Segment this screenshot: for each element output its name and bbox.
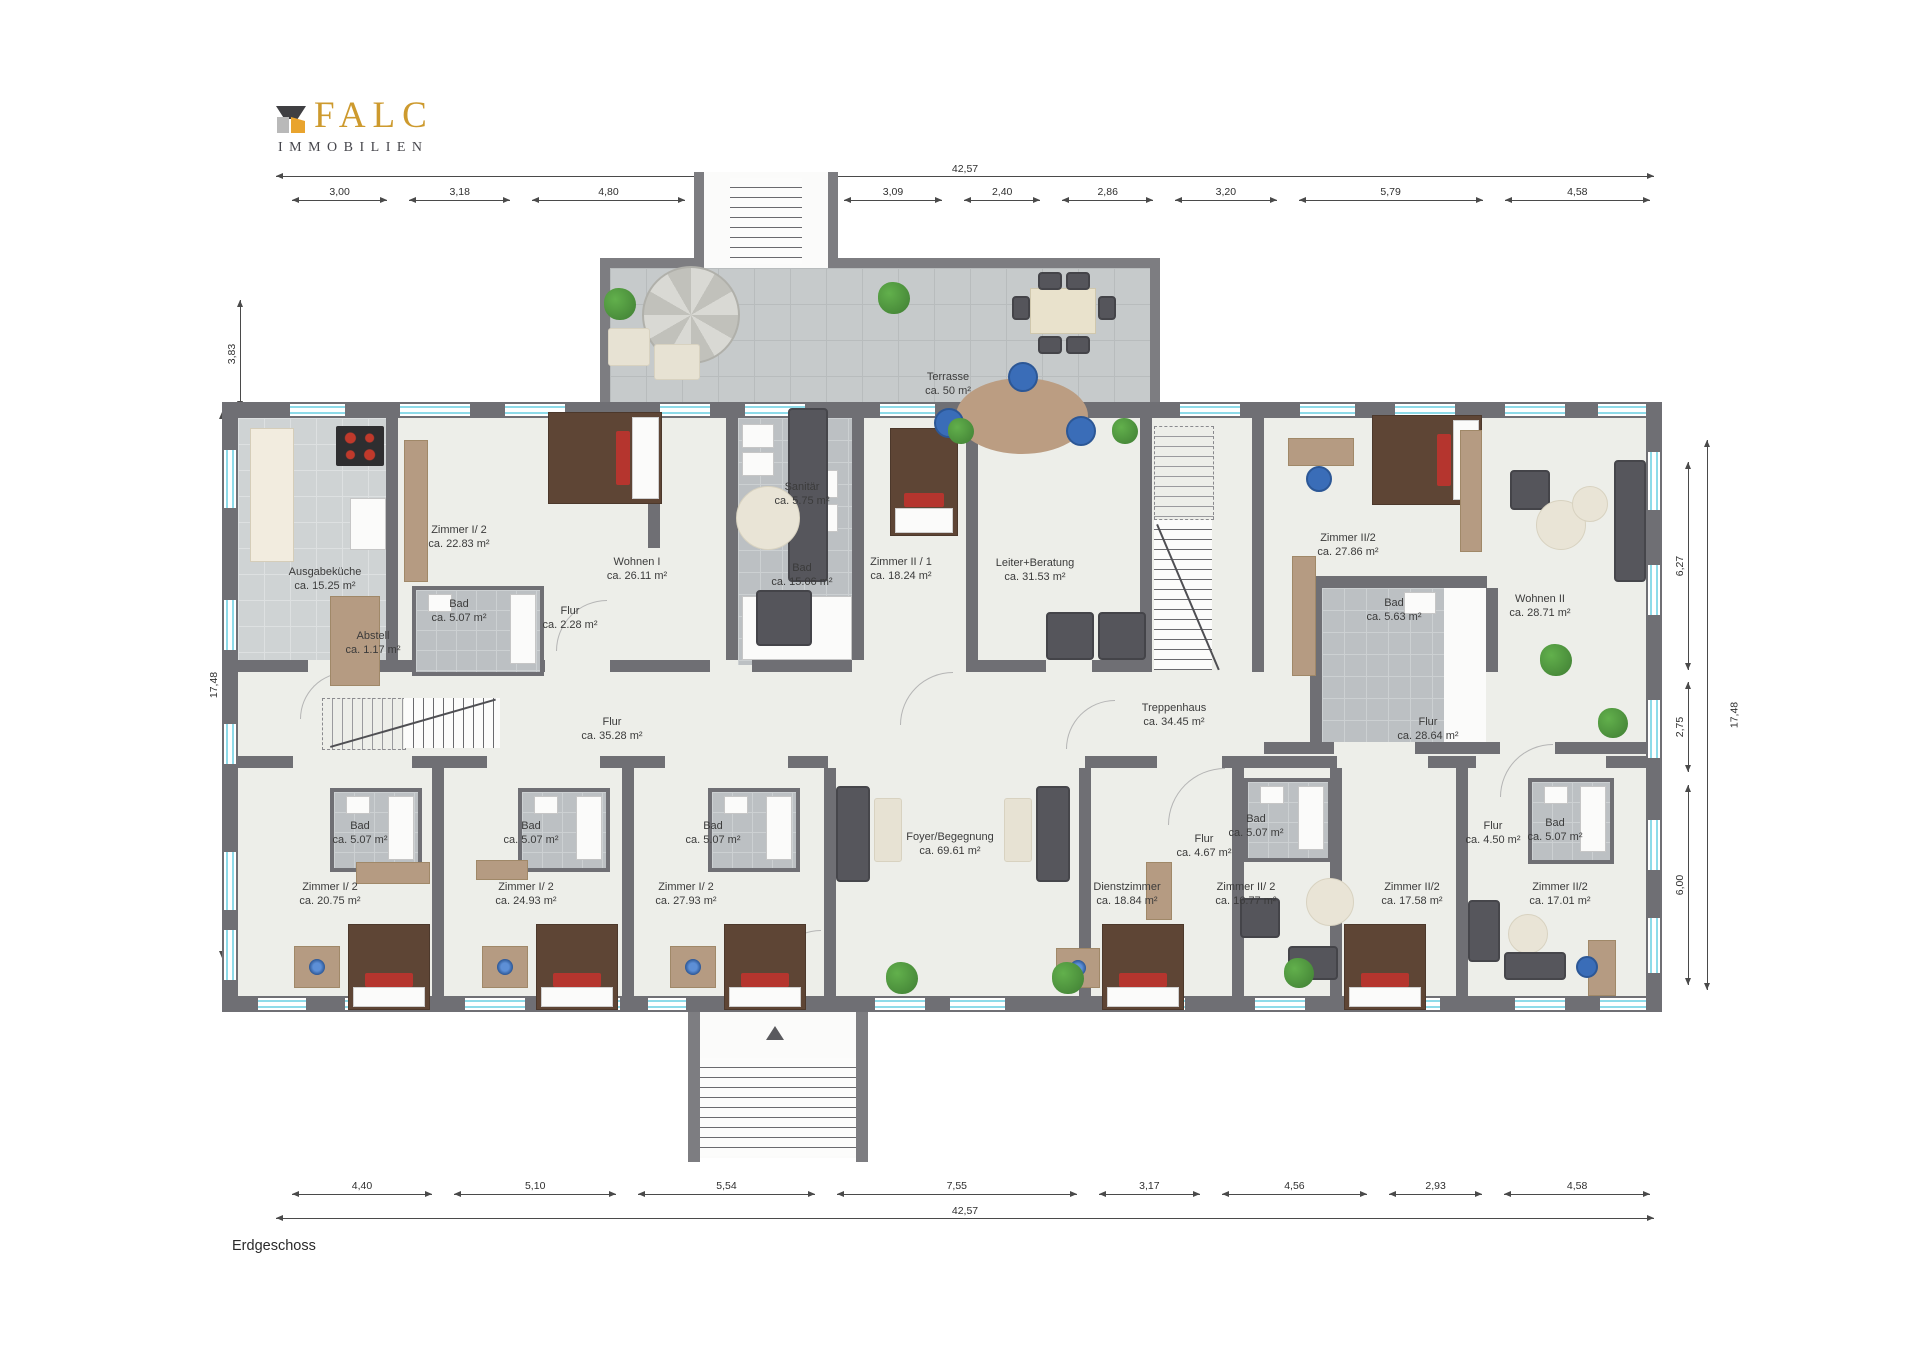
room-name: Zimmer I/ 2 xyxy=(255,881,405,895)
room-label-flur-links: Flurca. 35.28 m² xyxy=(537,716,687,743)
interior-wall xyxy=(1317,576,1487,588)
blanket-icon xyxy=(1361,973,1409,987)
interior-wall xyxy=(966,418,978,660)
dim-segment: 4,58 xyxy=(1505,186,1650,204)
room-label-zimmer-ii2-1758: Zimmer II/2ca. 17.58 m² xyxy=(1337,881,1487,908)
armchair xyxy=(756,590,812,646)
dim-segment: 5,79 xyxy=(1299,186,1483,204)
window-icon xyxy=(1648,700,1660,758)
room-label-wohnen-2: Wohnen IIca. 28.71 m² xyxy=(1465,593,1615,620)
room-label-foyer: Foyer/Begegnungca. 69.61 m² xyxy=(875,831,1025,858)
room-area: ca. 16.77 m² xyxy=(1171,895,1321,909)
lounge-chair xyxy=(654,344,700,380)
interior-wall xyxy=(1222,756,1337,768)
dim-segment: 4,40 xyxy=(292,1180,432,1198)
interior-wall xyxy=(966,660,1046,672)
window-icon xyxy=(1598,404,1646,416)
window-icon xyxy=(1300,404,1355,416)
blanket-icon xyxy=(741,973,789,987)
room-area: ca. 5.07 m² xyxy=(1181,827,1331,841)
window-icon xyxy=(1648,918,1660,973)
room-label-bad-d: Badca. 5.07 m² xyxy=(1181,813,1331,840)
plant-icon xyxy=(1052,962,1084,994)
room-area: ca. 28.64 m² xyxy=(1353,730,1503,744)
plant-icon xyxy=(886,962,918,994)
dim-segment: 3,09 xyxy=(844,186,942,204)
room-label-zimmer-ii2-1677: Zimmer II/ 2ca. 16.77 m² xyxy=(1171,881,1321,908)
room-area: ca. 2.28 m² xyxy=(495,619,645,633)
room-name: Flur xyxy=(495,605,645,619)
room-name: Bad xyxy=(638,820,788,834)
room-area: ca. 31.53 m² xyxy=(960,571,1110,585)
window-icon xyxy=(290,404,345,416)
stair-wall xyxy=(828,172,838,268)
room-name: Zimmer I/ 2 xyxy=(611,881,761,895)
blanket-icon xyxy=(1119,973,1167,987)
desk xyxy=(1288,438,1354,466)
dim-right-segment: 2,75 xyxy=(1688,682,1689,772)
dim-segment: 3,18 xyxy=(409,186,510,204)
falc-logo-icon xyxy=(276,106,306,133)
flower-icon xyxy=(685,959,701,975)
sink-icon xyxy=(742,452,774,476)
staircase-top xyxy=(730,178,802,264)
room-name: Terrasse xyxy=(873,371,1023,385)
room-area: ca. 27.93 m² xyxy=(611,895,761,909)
interior-wall xyxy=(824,768,836,996)
room-label-bad-c: Badca. 5.07 m² xyxy=(638,820,788,847)
pillow-icon xyxy=(1107,987,1179,1007)
pillow-icon xyxy=(1349,987,1421,1007)
room-area: ca. 35.28 m² xyxy=(537,730,687,744)
dim-top-segments: 3,003,184,803,633,092,402,863,205,794,58 xyxy=(292,186,1650,204)
floor-label: Erdgeschoss xyxy=(232,1238,316,1254)
brand-subtitle: IMMOBILIEN xyxy=(278,140,429,156)
kitchen-counter xyxy=(250,428,294,562)
window-icon xyxy=(1515,998,1565,1010)
window-icon xyxy=(880,404,935,416)
plant-icon xyxy=(878,282,910,314)
blanket-icon xyxy=(365,973,413,987)
blanket-icon xyxy=(904,493,944,507)
room-name: Flur xyxy=(1353,716,1503,730)
dim-segment: 3,20 xyxy=(1175,186,1277,204)
room-area: ca. 5.07 m² xyxy=(285,834,435,848)
room-area: ca. 27.86 m² xyxy=(1273,546,1423,560)
plant-icon xyxy=(604,288,636,320)
window-icon xyxy=(875,998,925,1010)
window-icon xyxy=(1505,404,1565,416)
stove-icon xyxy=(336,426,384,466)
interior-wall xyxy=(610,660,710,672)
window-icon xyxy=(1180,404,1240,416)
room-area: ca. 50 m² xyxy=(873,385,1023,399)
pillow-icon xyxy=(353,987,425,1007)
room-name: Abstell xyxy=(298,630,448,644)
rug xyxy=(1572,486,1608,522)
bed xyxy=(348,924,430,1010)
room-area: ca. 28.71 m² xyxy=(1465,607,1615,621)
room-area: ca. 4.67 m² xyxy=(1129,847,1279,861)
room-area: ca. 5.75 m² xyxy=(727,495,877,509)
staircase-dashed xyxy=(322,698,406,750)
window-icon xyxy=(224,852,236,910)
nightstand xyxy=(670,946,716,988)
dim-segment: 2,93 xyxy=(1389,1180,1482,1198)
dim-segment: 4,80 xyxy=(532,186,684,204)
pillow-icon xyxy=(895,508,953,533)
room-area: ca. 5.07 m² xyxy=(456,834,606,848)
pillow-icon xyxy=(632,417,659,499)
wardrobe xyxy=(1460,430,1482,552)
room-label-bad-e: Badca. 5.07 m² xyxy=(1480,817,1630,844)
sofa xyxy=(1468,900,1500,962)
room-label-abstell: Abstellca. 1.17 m² xyxy=(298,630,448,657)
room-name: Wohnen II xyxy=(1465,593,1615,607)
sink-icon xyxy=(1260,786,1284,804)
room-label-bad-a: Badca. 5.07 m² xyxy=(285,820,435,847)
chair xyxy=(1012,296,1030,320)
sofa xyxy=(836,786,870,882)
window-icon xyxy=(1648,820,1660,870)
chair xyxy=(1066,272,1090,290)
interior-wall xyxy=(1428,756,1476,768)
chair xyxy=(1038,272,1062,290)
window-icon xyxy=(1255,998,1305,1010)
pillow-icon xyxy=(729,987,801,1007)
room-name: Sanitär xyxy=(727,481,877,495)
plant-icon xyxy=(1284,958,1314,988)
dim-right-segment: 6,27 xyxy=(1688,462,1689,670)
room-label-bad-rechts: Badca. 5.63 m² xyxy=(1319,597,1469,624)
armchair xyxy=(1510,470,1550,510)
stair-wall xyxy=(694,172,704,268)
kitchen-sink-icon xyxy=(350,498,386,550)
room-area: ca. 24.93 m² xyxy=(451,895,601,909)
window-icon xyxy=(224,930,236,980)
room-name: Leiter+Beratung xyxy=(960,557,1110,571)
dim-right-segment: 6,00 xyxy=(1688,785,1689,985)
wardrobe xyxy=(1292,556,1316,676)
room-name: Bad xyxy=(1319,597,1469,611)
interior-wall xyxy=(1555,742,1646,754)
nightstand xyxy=(482,946,528,988)
dim-top-total: 42,57 xyxy=(276,176,1654,177)
room-name: Treppenhaus xyxy=(1099,702,1249,716)
sideboard xyxy=(476,860,528,880)
room-label-zimmer-ii2-top: Zimmer II/2ca. 27.86 m² xyxy=(1273,532,1423,559)
room-name: Zimmer II/2 xyxy=(1273,532,1423,546)
interior-wall xyxy=(1415,742,1500,754)
room-area: ca. 22.83 m² xyxy=(384,538,534,552)
window-icon xyxy=(1648,565,1660,615)
blanket-icon xyxy=(553,973,601,987)
dim-segment: 2,86 xyxy=(1062,186,1153,204)
room-name: Zimmer I/ 2 xyxy=(451,881,601,895)
room-area: ca. 18.24 m² xyxy=(826,570,976,584)
dim-bottom-total: 42,57 xyxy=(276,1218,1654,1219)
interior-wall xyxy=(1092,660,1152,672)
dining-table xyxy=(1030,288,1096,334)
sofa xyxy=(1614,460,1646,582)
staircase-left xyxy=(404,698,500,748)
interior-wall xyxy=(1606,756,1646,768)
room-label-zimmer-i2-top: Zimmer I/ 2ca. 22.83 m² xyxy=(384,524,534,551)
flower-icon xyxy=(497,959,513,975)
room-area: ca. 1.17 m² xyxy=(298,644,448,658)
room-area: ca. 5.07 m² xyxy=(1480,831,1630,845)
chair xyxy=(1038,336,1062,354)
room-name: Zimmer II/2 xyxy=(1337,881,1487,895)
room-name: Zimmer II/ 2 xyxy=(1171,881,1321,895)
dim-segment: 4,58 xyxy=(1504,1180,1650,1198)
pillow-icon xyxy=(541,987,613,1007)
bed xyxy=(548,412,662,504)
room-label-flur-rechts: Flurca. 28.64 m² xyxy=(1353,716,1503,743)
room-name: Ausgabeküche xyxy=(250,566,400,580)
bed xyxy=(1102,924,1184,1010)
dim-bottom-segments: 4,405,105,547,553,174,562,934,58 xyxy=(292,1180,1650,1198)
room-label-flur-klein: Flurca. 2.28 m² xyxy=(495,605,645,632)
window-icon xyxy=(950,998,1005,1010)
sink-icon xyxy=(724,796,748,814)
window-icon xyxy=(224,724,236,764)
stair-wall xyxy=(688,1012,700,1162)
room-name: Bad xyxy=(1181,813,1331,827)
room-label-zimmer-i2-c: Zimmer I/ 2ca. 27.93 m² xyxy=(611,881,761,908)
interior-wall xyxy=(752,660,852,672)
dim-segment: 3,17 xyxy=(1099,1180,1200,1198)
sofa xyxy=(1504,952,1566,980)
window-icon xyxy=(465,998,525,1010)
office-chair xyxy=(1576,956,1598,978)
room-label-zimmer-ii2-1701: Zimmer II/2ca. 17.01 m² xyxy=(1485,881,1635,908)
blanket-icon xyxy=(616,431,630,485)
room-area: ca. 5.07 m² xyxy=(638,834,788,848)
dim-segment: 7,55 xyxy=(837,1180,1077,1198)
sink-icon xyxy=(1544,786,1568,804)
room-label-zimmer-i2-b: Zimmer I/ 2ca. 24.93 m² xyxy=(451,881,601,908)
dim-segment: 3,00 xyxy=(292,186,387,204)
sink-icon xyxy=(346,796,370,814)
visitor-chair xyxy=(1098,612,1146,660)
room-area: ca. 17.58 m² xyxy=(1337,895,1487,909)
room-area: ca. 34.45 m² xyxy=(1099,716,1249,730)
bed xyxy=(724,924,806,1010)
bed xyxy=(890,428,958,536)
dim-segment: 4,56 xyxy=(1222,1180,1367,1198)
room-name: Zimmer II / 1 xyxy=(826,556,976,570)
window-icon xyxy=(400,404,470,416)
chair xyxy=(1066,336,1090,354)
plant-icon xyxy=(1112,418,1138,444)
interior-wall xyxy=(788,756,828,768)
interior-wall xyxy=(412,756,487,768)
visitor-chair xyxy=(1046,612,1094,660)
stair-wall xyxy=(856,1012,868,1162)
room-label-zimmer-i2-a: Zimmer I/ 2ca. 20.75 m² xyxy=(255,881,405,908)
staircase-bottom xyxy=(700,1058,856,1156)
room-label-zimmer-ii1: Zimmer II / 1ca. 18.24 m² xyxy=(826,556,976,583)
window-icon xyxy=(660,404,710,416)
room-area: ca. 5.63 m² xyxy=(1319,611,1469,625)
chair xyxy=(1098,296,1116,320)
interior-wall xyxy=(600,756,665,768)
room-label-terrasse: Terrasseca. 50 m² xyxy=(873,371,1023,398)
floor-plan-page: FALC IMMOBILIEN 42,57 42,57 17,48 17,48 … xyxy=(0,0,1920,1357)
dim-segment: 2,40 xyxy=(964,186,1040,204)
interior-wall xyxy=(726,418,738,660)
room-label-leiter-beratung: Leiter+Beratungca. 31.53 m² xyxy=(960,557,1110,584)
window-icon xyxy=(1648,452,1660,510)
entrance-arrow-icon xyxy=(766,1026,784,1040)
office-chair xyxy=(1066,416,1096,446)
window-icon xyxy=(258,998,306,1010)
room-area: ca. 26.11 m² xyxy=(562,570,712,584)
wardrobe xyxy=(404,440,428,582)
room-area: ca. 69.61 m² xyxy=(875,845,1025,859)
interior-wall xyxy=(1264,742,1334,754)
brand-name: FALC xyxy=(314,94,434,137)
interior-wall xyxy=(238,756,293,768)
room-label-treppenhaus: Treppenhausca. 34.45 m² xyxy=(1099,702,1249,729)
room-label-sanitaer: Sanitärca. 5.75 m² xyxy=(727,481,877,508)
interior-wall xyxy=(1085,756,1157,768)
office-chair xyxy=(1306,466,1332,492)
window-icon xyxy=(224,450,236,508)
sink-icon xyxy=(534,796,558,814)
plant-icon xyxy=(1540,644,1572,676)
room-name: Wohnen I xyxy=(562,556,712,570)
rug xyxy=(1508,914,1548,954)
interior-wall xyxy=(238,660,308,672)
room-area: ca. 17.01 m² xyxy=(1485,895,1635,909)
room-name: Zimmer II/2 xyxy=(1485,881,1635,895)
room-name: Foyer/Begegnung xyxy=(875,831,1025,845)
room-area: ca. 20.75 m² xyxy=(255,895,405,909)
room-name: Bad xyxy=(456,820,606,834)
interior-wall xyxy=(852,418,864,660)
room-name: Zimmer I/ 2 xyxy=(384,524,534,538)
room-name: Bad xyxy=(285,820,435,834)
room-label-wohnen-1: Wohnen Ica. 26.11 m² xyxy=(562,556,712,583)
plant-icon xyxy=(1598,708,1628,738)
terrace-wall xyxy=(1150,258,1160,410)
room-name: Bad xyxy=(1480,817,1630,831)
lounge-chair xyxy=(608,328,650,366)
window-icon xyxy=(224,600,236,650)
nightstand xyxy=(294,946,340,988)
dim-right-total: 17,48 xyxy=(1707,440,1708,990)
dim-segment: 5,10 xyxy=(454,1180,616,1198)
room-label-ausgabekueche: Ausgabekücheca. 15.25 m² xyxy=(250,566,400,593)
bed xyxy=(1344,924,1426,1010)
window-icon xyxy=(648,998,686,1010)
room-label-bad-b: Badca. 5.07 m² xyxy=(456,820,606,847)
room-area: ca. 15.25 m² xyxy=(250,580,400,594)
interior-wall xyxy=(1252,418,1264,672)
dim-segment: 5,54 xyxy=(638,1180,814,1198)
bed xyxy=(536,924,618,1010)
dim-left-segment: 3,83 xyxy=(240,300,241,408)
sofa xyxy=(1036,786,1070,882)
plant-icon xyxy=(948,418,974,444)
sink-icon xyxy=(742,424,774,448)
interior-wall xyxy=(432,768,444,996)
window-icon xyxy=(1600,998,1646,1010)
room-name: Flur xyxy=(537,716,687,730)
staircase-upper-flight xyxy=(1154,426,1214,520)
flower-icon xyxy=(309,959,325,975)
blanket-icon xyxy=(1437,434,1451,487)
